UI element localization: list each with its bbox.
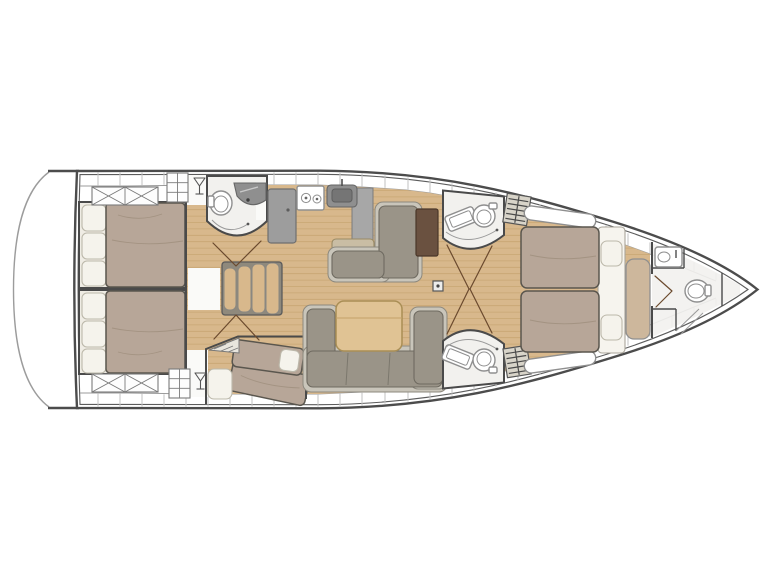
head-bottom	[441, 330, 504, 388]
pillow	[82, 205, 106, 231]
deck-hatch-port	[92, 187, 158, 205]
aft-cabin-port	[79, 202, 186, 288]
salon	[303, 301, 447, 392]
owner-mattress-bottom	[521, 291, 599, 352]
pillow	[208, 369, 232, 399]
faucet-dot	[246, 198, 249, 201]
pillow	[601, 241, 622, 266]
burner-center	[305, 197, 308, 200]
head-top	[443, 191, 504, 249]
pillow	[601, 315, 622, 340]
refrigerator	[268, 189, 296, 243]
aft-cabin-starboard	[79, 290, 186, 374]
arc-dot	[496, 348, 499, 351]
floor-plan-svg	[0, 0, 768, 576]
bunk-cabin	[206, 337, 310, 407]
burner-center	[316, 198, 319, 201]
toilet-hinge	[489, 367, 497, 373]
salon-table	[336, 301, 402, 351]
pillow	[82, 293, 106, 319]
toilet-hinge	[489, 203, 497, 209]
yacht-floor-plan	[0, 0, 768, 576]
stair-tread	[266, 263, 279, 314]
pillow	[82, 233, 106, 259]
pillow	[82, 321, 106, 347]
settee-seat	[379, 206, 418, 278]
aft-port-mattress	[106, 203, 185, 287]
toilet-hinge	[208, 196, 214, 207]
companionway-stairs	[188, 262, 282, 315]
locker-grid-top	[167, 173, 188, 202]
sofa-seat-right	[414, 311, 443, 384]
transom-curve	[14, 172, 50, 407]
settee-seat	[332, 251, 384, 278]
arc-dot	[247, 223, 250, 226]
locker-grid-bottom	[169, 369, 190, 398]
pillow	[278, 349, 300, 372]
toilet-hinge	[705, 285, 711, 296]
stair-tread	[238, 266, 251, 312]
deck-hatch-starboard	[92, 374, 158, 392]
arc-dot	[496, 229, 499, 232]
stair-tread	[224, 268, 236, 310]
sink-basin	[332, 189, 352, 202]
transom-outline	[14, 171, 80, 408]
mast-step	[433, 281, 443, 291]
chart-table	[416, 209, 438, 256]
aft-head	[207, 176, 267, 236]
pillow	[82, 261, 106, 286]
stair-tread	[252, 264, 265, 313]
bow-sink	[655, 247, 682, 267]
fridge-handle	[286, 208, 289, 211]
vanity-bench	[626, 259, 650, 339]
companionway-locker-door	[188, 268, 220, 310]
pillow	[82, 349, 106, 373]
